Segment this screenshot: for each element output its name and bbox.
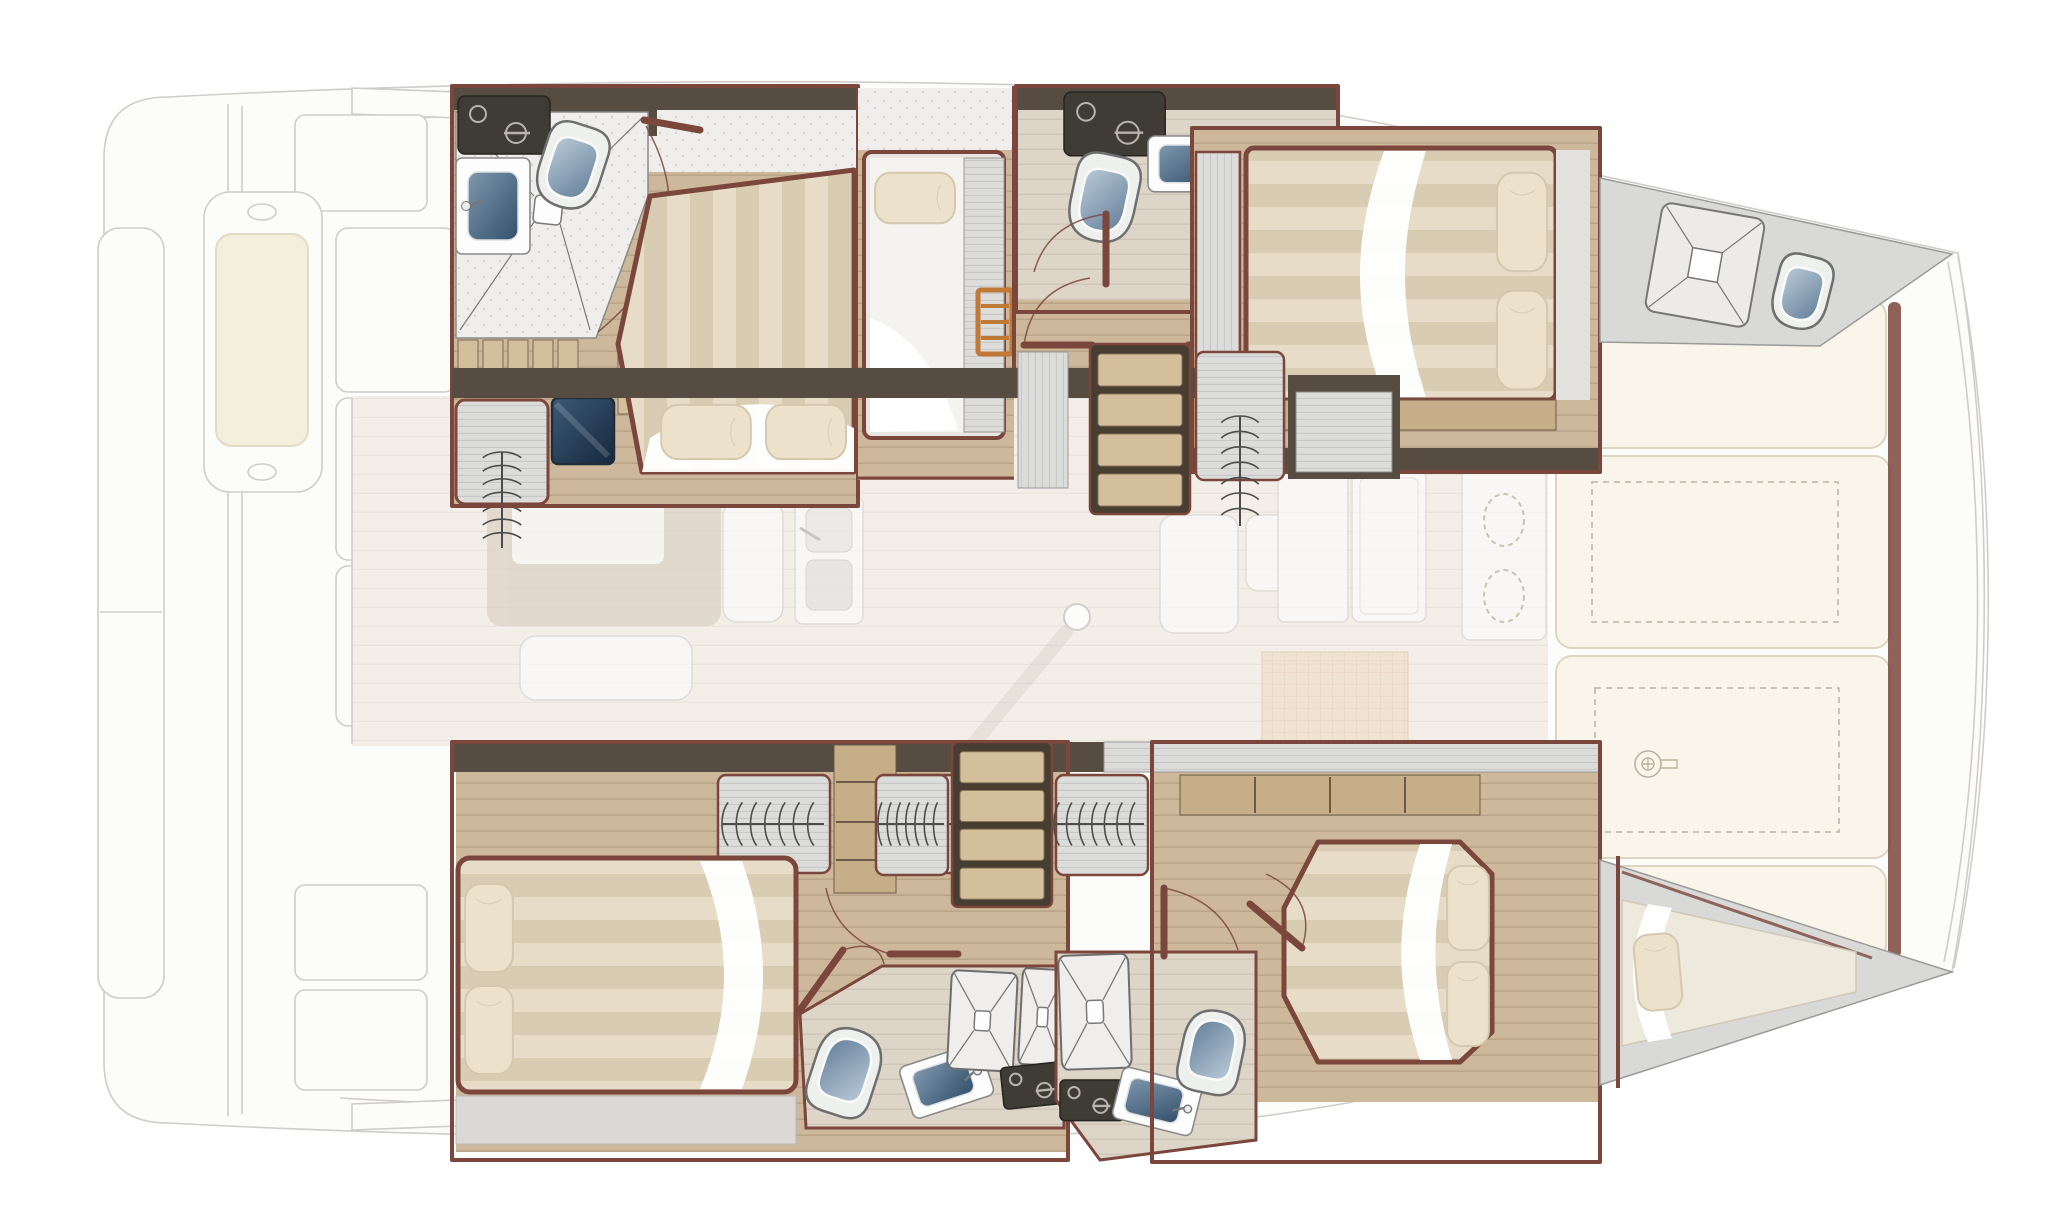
hanging-locker-icon — [1054, 775, 1148, 875]
galley-counter — [1278, 470, 1348, 622]
pillow-icon — [1447, 962, 1489, 1046]
sink-basin-1 — [806, 508, 852, 552]
cockpit-seat-right-1 — [336, 228, 456, 392]
port-aft-cabin — [452, 86, 858, 548]
hanging-locker-icon — [876, 775, 948, 875]
stbd-fwd-head — [1056, 952, 1256, 1160]
shelf-strip — [1180, 775, 1480, 815]
sunpad-2 — [1556, 456, 1890, 648]
galley-sink-unit — [795, 496, 863, 624]
sunpad-3 — [1556, 656, 1890, 858]
galley-fridge — [1352, 470, 1426, 622]
sink-basin-2 — [806, 560, 852, 610]
top-gray-band — [1104, 742, 1600, 772]
saloon-bench — [520, 636, 692, 700]
pillow-icon — [1633, 932, 1684, 1012]
pillow-icon — [875, 173, 955, 224]
cockpit-side-bench — [98, 228, 164, 998]
hull-side-band — [456, 1096, 796, 1144]
pillow-icon — [766, 405, 846, 459]
cockpit-seat-bottom-1 — [295, 885, 427, 980]
galley-grid-mat — [1262, 652, 1408, 744]
fridge-body — [1352, 470, 1426, 622]
linen-locker — [1296, 392, 1392, 472]
deck-hatch-icon — [1644, 202, 1766, 328]
foredeck-trim — [1888, 302, 1901, 958]
double-bed — [1284, 842, 1492, 1062]
shower-tray-icon — [947, 970, 1018, 1072]
nav-seat-1 — [1160, 515, 1238, 633]
double-bed — [1246, 148, 1590, 400]
pillow-icon — [465, 986, 513, 1074]
electrical-panel-icon — [458, 96, 550, 154]
lounge-handle-top — [248, 204, 276, 220]
bed-edge-strip — [1556, 150, 1590, 400]
pillow-icon — [465, 884, 513, 972]
saloon-chaise — [723, 502, 783, 622]
port-single-berth — [858, 86, 1014, 480]
pillow-icon — [1447, 866, 1489, 950]
floor-plan-svg — [0, 0, 2048, 1218]
cockpit-centre-lounge — [204, 192, 322, 492]
cockpit-seat-bottom-2 — [295, 990, 427, 1090]
lounge-cushion — [216, 234, 308, 446]
cockpit-seat-top-1 — [295, 115, 427, 211]
galley-stove — [1462, 468, 1546, 640]
berth-deck-strip — [858, 88, 1014, 150]
mast-icon — [1064, 604, 1090, 630]
shower-tray-icon — [1058, 954, 1132, 1070]
tv-icon — [552, 398, 614, 464]
cabinet-left-of-stairs — [1018, 352, 1068, 488]
stair-steps-icon — [952, 742, 1052, 907]
floor-plan-page — [0, 0, 2048, 1218]
double-bed — [618, 170, 854, 472]
stbd-aft-head — [800, 966, 1070, 1128]
double-bed — [458, 858, 796, 1092]
pillow-icon — [1497, 173, 1547, 271]
sink-icon — [456, 158, 530, 254]
pillow-icon — [1497, 291, 1547, 389]
lounge-handle-bottom — [248, 464, 276, 480]
stair-steps-icon — [1090, 344, 1190, 514]
pillow-icon — [661, 405, 751, 459]
